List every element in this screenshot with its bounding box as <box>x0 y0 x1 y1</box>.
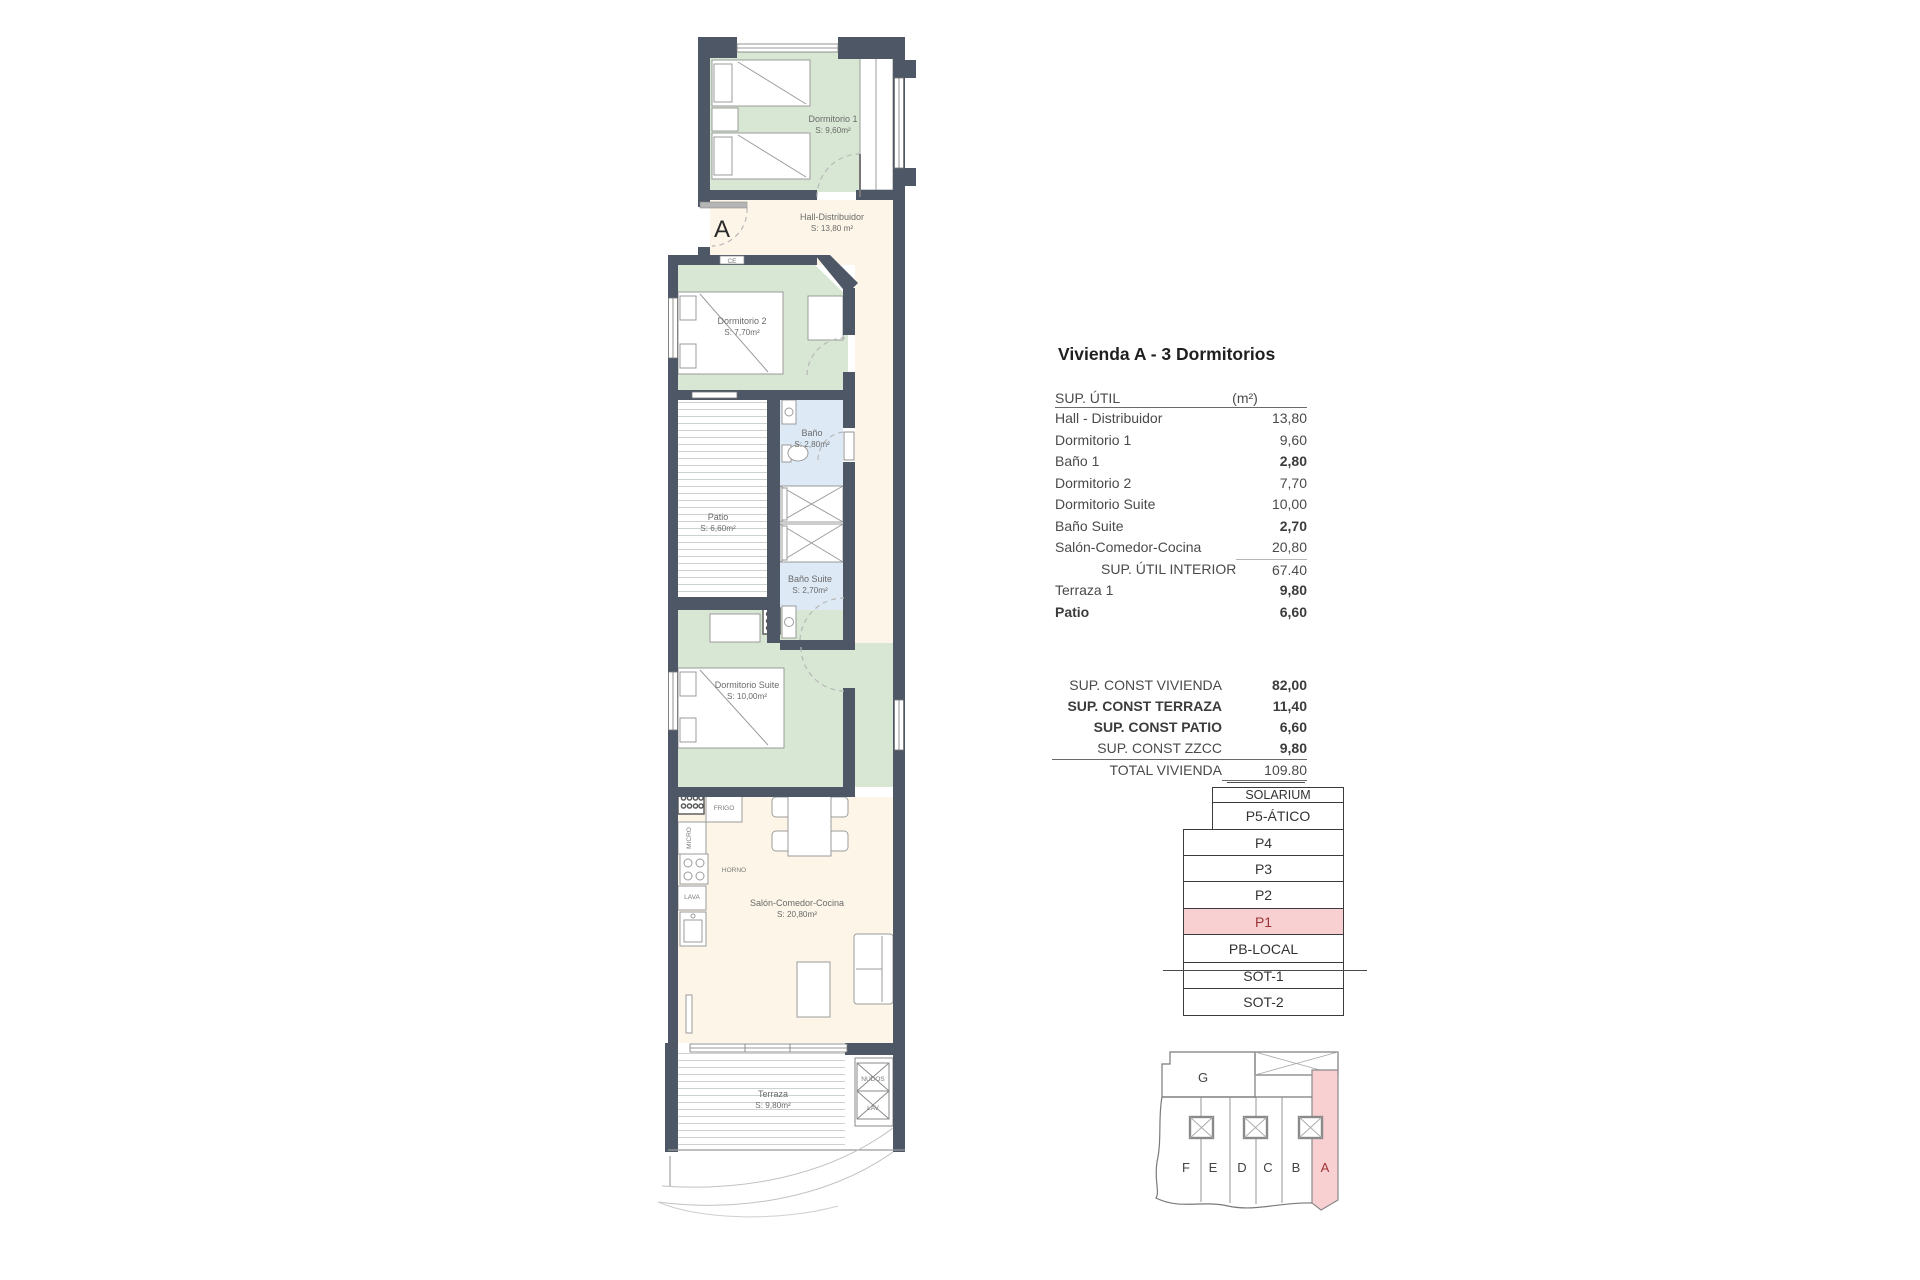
room-area-terraza: S: 9,80m² <box>755 1101 791 1110</box>
row-label: SUP. CONST TERRAZA <box>1052 696 1222 717</box>
row-label: SUP. CONST VIVIENDA <box>1052 675 1222 696</box>
window-left-suite <box>669 672 678 730</box>
keyplan-torn-edge <box>1156 1097 1312 1208</box>
sup-const-row: SUP. CONST PATIO6,60 <box>1052 717 1307 738</box>
level-p4: P4 <box>1183 829 1344 856</box>
row-value: 20,80 <box>1235 537 1307 559</box>
bed-single-1 <box>712 60 810 106</box>
patio-hatch <box>678 400 767 597</box>
row-value: 9,60 <box>1235 430 1307 452</box>
row-value: 6,60 <box>1222 717 1307 738</box>
sup-util-row: Patio6,60 <box>1055 602 1307 624</box>
row-value: 67.40 <box>1236 559 1307 581</box>
row-label: TOTAL VIVIENDA <box>1052 760 1222 781</box>
coffee-table <box>797 962 830 1017</box>
page-title: Vivienda A - 3 Dormitorios <box>1058 344 1275 365</box>
room-label-hall-distribuidor: Hall-Distribuidor <box>800 212 864 222</box>
wardrobe-dorm1 <box>860 50 893 190</box>
room-area-bano-1: S: 2,80m² <box>794 440 830 449</box>
lava-label: LAVA <box>684 894 700 901</box>
room-area-dormitorio-1: S: 9,60m² <box>815 126 851 135</box>
level-p2: P2 <box>1183 881 1344 909</box>
sup-util-row: Dormitorio 19,60 <box>1055 430 1307 452</box>
row-label: SUP. CONST ZZCC <box>1052 738 1222 759</box>
lav-label: LAV <box>867 1105 879 1112</box>
level-p1: P1 <box>1183 908 1344 936</box>
bed-single-2 <box>712 133 810 179</box>
hob-oven <box>680 854 708 884</box>
keyplan-letter-d: D <box>1237 1160 1246 1175</box>
sup-const-row: TOTAL VIVIENDA109.80 <box>1052 759 1307 781</box>
sup-util-row: Dormitorio Suite10,00 <box>1055 494 1307 516</box>
room-label-salon-comedor-cocina: Salón-Comedor-Cocina <box>750 898 844 908</box>
sup-const-row: SUP. CONST TERRAZA11,40 <box>1052 696 1307 717</box>
armario-1 <box>780 486 843 522</box>
washbasin-bano-suite <box>782 606 796 638</box>
window-right-dorm1 <box>895 78 904 168</box>
room-area-salon-comedor-cocina: S: 20,80m² <box>777 910 817 919</box>
armario-2 <box>780 524 843 562</box>
entry-landing <box>700 202 747 208</box>
floor-plan: Dormitorio 1S: 9,60m²Hall-DistribuidorS:… <box>640 20 940 1250</box>
room-label-bano-suite: Baño Suite <box>788 574 832 584</box>
row-label: Dormitorio Suite <box>1055 494 1235 516</box>
row-label: Dormitorio 2 <box>1055 473 1235 495</box>
row-label: SUP. CONST PATIO <box>1052 717 1222 738</box>
nudos-label: NUDOS <box>861 1076 885 1083</box>
room-area-dormitorio-suite: S: 10,00m² <box>727 692 767 701</box>
frigo-label: FRIGO <box>714 805 735 812</box>
sup-util-row: Dormitorio 27,70 <box>1055 473 1307 495</box>
row-label: Patio <box>1055 602 1235 624</box>
window-right-suite <box>895 700 904 750</box>
horno-label: HORNO <box>722 867 746 874</box>
sup-const-row: SUP. CONST ZZCC9,80 <box>1052 738 1307 759</box>
page: Dormitorio 1S: 9,60m²Hall-DistribuidorS:… <box>0 0 1920 1280</box>
level-pb-local: PB-LOCAL <box>1183 934 1344 963</box>
room-label-patio: Patio <box>708 512 729 522</box>
room-label-dormitorio-suite: Dormitorio Suite <box>715 680 780 690</box>
keyplan-letter-c: C <box>1263 1160 1272 1175</box>
sup-util-row: SUP. ÚTIL INTERIOR67.40 <box>1055 559 1307 581</box>
sofa <box>854 934 893 1004</box>
building-level-stack: SOLARIUMP5-ÁTICOP4P3P2P1PB-LOCALSOT-1SOT… <box>1183 787 1344 1016</box>
sup-const-row: SUP. CONST VIVIENDA82,00 <box>1052 675 1307 696</box>
keyplan-letter-e: E <box>1209 1160 1218 1175</box>
key-plan: GFEDCBA <box>1140 1040 1370 1225</box>
row-value: 10,00 <box>1235 494 1307 516</box>
row-label: Baño 1 <box>1055 451 1235 473</box>
row-label: Salón-Comedor-Cocina <box>1055 537 1235 559</box>
row-label: Hall - Distribuidor <box>1055 408 1235 430</box>
sup-util-header-unit: (m²) <box>1209 390 1281 406</box>
keyplan-letter-a: A <box>1321 1160 1330 1175</box>
sup-util-row: Salón-Comedor-Cocina20,80 <box>1055 537 1307 559</box>
ground-line <box>1163 970 1367 971</box>
level-sot-2: SOT-2 <box>1183 988 1344 1016</box>
row-label: Baño Suite <box>1055 516 1235 538</box>
entry-label: A <box>714 216 730 243</box>
keyplan-g-outline <box>1162 1052 1255 1097</box>
window-sliding-terrace <box>690 1044 847 1052</box>
room-label-terraza: Terraza <box>758 1089 788 1099</box>
sup-util-row: Hall - Distribuidor13,80 <box>1055 408 1307 430</box>
keyplan-dividers <box>1201 1097 1282 1204</box>
room-area-patio: S: 6,60m² <box>700 524 736 533</box>
stack-top-line <box>1227 782 1305 783</box>
terrace-utility <box>855 1058 893 1126</box>
ce-label: CE <box>727 258 737 265</box>
window-top <box>737 44 838 52</box>
room-area-hall-distribuidor: S: 13,80 m² <box>811 224 854 233</box>
row-value: 109.80 <box>1222 760 1307 781</box>
nightstand <box>712 108 738 131</box>
room-label-bano-1: Baño <box>801 428 822 438</box>
row-label: Dormitorio 1 <box>1055 430 1235 452</box>
sup-util-table: SUP. ÚTIL (m²) Hall - Distribuidor13,80D… <box>1055 389 1307 623</box>
window-left-dorm2 <box>669 298 678 358</box>
sup-util-header-label: SUP. ÚTIL <box>1055 390 1235 406</box>
row-value: 9,80 <box>1222 738 1307 759</box>
wardrobe-dorm2 <box>808 296 843 340</box>
wardrobe-suite <box>710 614 760 642</box>
keyplan-letter-b: B <box>1292 1160 1301 1175</box>
row-value: 82,00 <box>1222 675 1307 696</box>
washbasin-bano1 <box>782 400 796 424</box>
room-label-dormitorio-2: Dormitorio 2 <box>717 316 766 326</box>
row-value: 13,80 <box>1235 408 1307 430</box>
sup-util-row: Terraza 19,80 <box>1055 580 1307 602</box>
row-value: 2,80 <box>1235 451 1307 473</box>
sup-util-row: Baño Suite2,70 <box>1055 516 1307 538</box>
row-value: 2,70 <box>1235 516 1307 538</box>
row-value: 7,70 <box>1235 473 1307 495</box>
row-label: Terraza 1 <box>1055 580 1235 602</box>
row-label: SUP. ÚTIL INTERIOR <box>1055 559 1236 581</box>
row-value: 11,40 <box>1222 696 1307 717</box>
window-patio <box>692 392 737 398</box>
sink <box>680 912 706 946</box>
door-leaf-bano1 <box>844 432 854 460</box>
room-area-dormitorio-2: S: 7,70m² <box>724 328 760 337</box>
room-area-bano-suite: S: 2,70m² <box>792 586 828 595</box>
level-p5-ático: P5-ÁTICO <box>1212 802 1344 831</box>
keyplan-letter-g: G <box>1198 1070 1208 1085</box>
micro-label: MICRO <box>686 827 693 849</box>
level-p3: P3 <box>1183 855 1344 883</box>
keyplan-letter-f: F <box>1182 1160 1190 1175</box>
sup-const-table: SUP. CONST VIVIENDA82,00SUP. CONST TERRA… <box>1052 675 1307 781</box>
row-value: 6,60 <box>1235 602 1307 624</box>
sup-util-header: SUP. ÚTIL (m²) <box>1055 389 1307 408</box>
level-sot-1: SOT-1 <box>1183 962 1344 990</box>
keyplan-unit-a <box>1312 1070 1338 1210</box>
sup-util-row: Baño 12,80 <box>1055 451 1307 473</box>
tv-unit <box>686 995 692 1033</box>
room-label-dormitorio-1: Dormitorio 1 <box>808 114 857 124</box>
row-value: 9,80 <box>1235 580 1307 602</box>
